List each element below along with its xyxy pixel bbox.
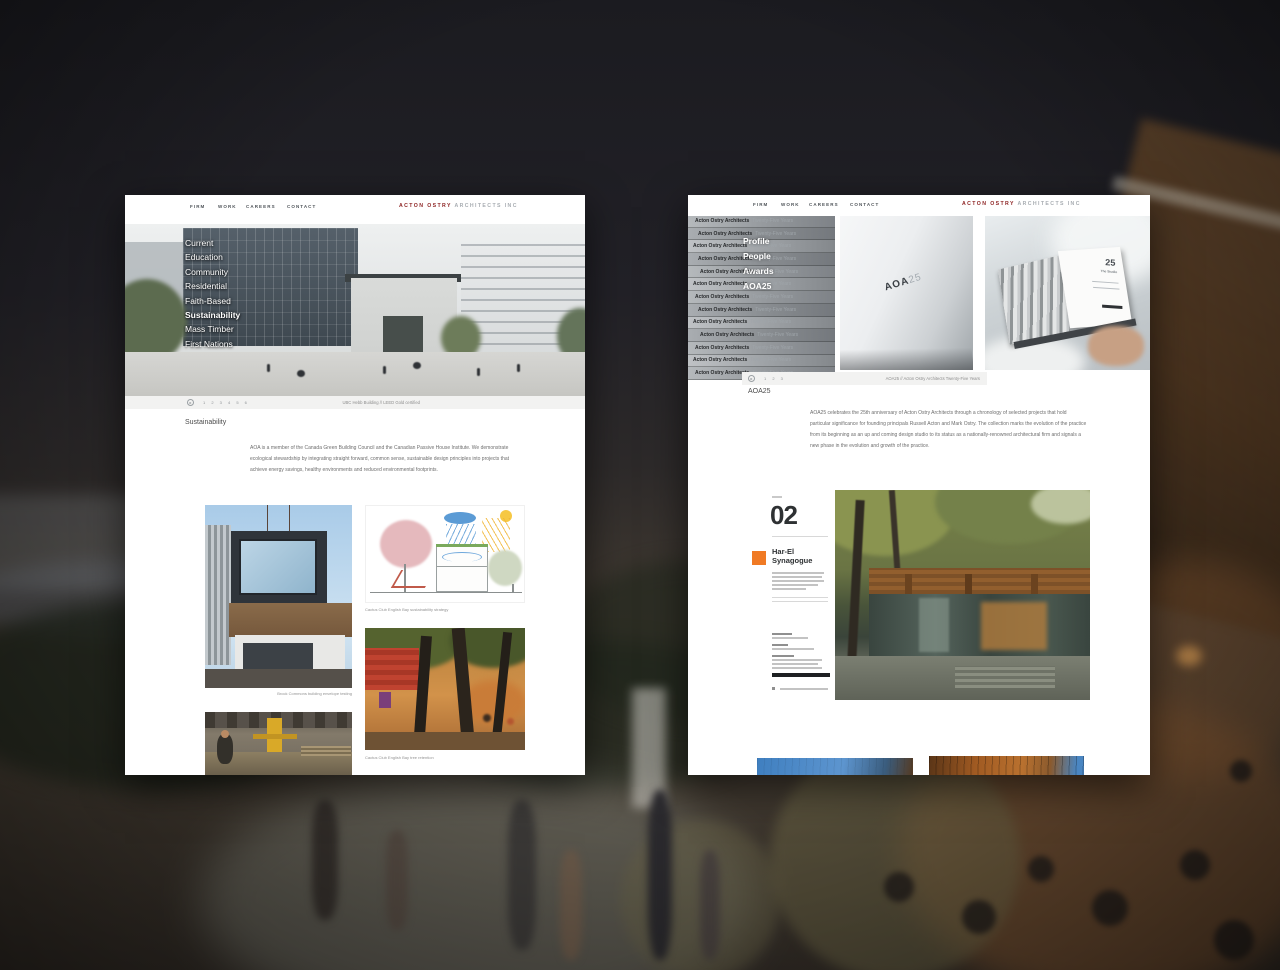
category-menu: Current Education Community Residential … bbox=[185, 236, 240, 351]
project-detail-line bbox=[772, 655, 794, 657]
project-detail-line bbox=[772, 644, 788, 646]
section-body: AOA is a member of the Canada Green Buil… bbox=[250, 443, 522, 476]
construction-mid bbox=[229, 603, 352, 637]
play-icon[interactable]: ▸ bbox=[748, 375, 755, 382]
menu-item-awards[interactable]: Awards bbox=[743, 264, 774, 279]
photo-thumb-sky-roof bbox=[757, 758, 913, 775]
panel-stack bbox=[301, 746, 351, 756]
photo-aoa25-book-cover: AOA25 bbox=[840, 215, 973, 370]
diagram-caption: Cactus Club English Bay sustainability s… bbox=[365, 607, 448, 612]
footer-line bbox=[780, 688, 828, 690]
project-blurb-line bbox=[772, 572, 824, 574]
website-screenshot-aoa25: FIRM WORK CAREERS CONTACT ACTON OSTRY AR… bbox=[688, 195, 1150, 775]
project-name: Har-ElSynagogue bbox=[772, 548, 812, 565]
cover-title: AOA25 bbox=[883, 272, 923, 294]
book-spine-title: Acton Ostry Architects bbox=[695, 345, 749, 351]
roof-slats bbox=[757, 758, 913, 775]
signage bbox=[379, 692, 391, 708]
hero-pedestrian bbox=[383, 366, 386, 374]
book-spine-subtitle: Twenty-Five Years bbox=[755, 307, 796, 313]
hero-pedestrian bbox=[517, 364, 520, 372]
page-number: 25 bbox=[1105, 257, 1115, 268]
book-spine-subtitle: Twenty-Five Years bbox=[750, 357, 791, 363]
menu-item-current[interactable]: Current bbox=[185, 236, 240, 250]
hero-plaza bbox=[125, 352, 585, 396]
project-detail-line bbox=[772, 663, 818, 665]
book-spine: Acton Ostry Architects Twenty-Five Years bbox=[688, 329, 835, 342]
nav-link-work[interactable]: WORK bbox=[218, 204, 237, 209]
page-heading: The Studio bbox=[1100, 269, 1117, 274]
patio-person bbox=[483, 714, 491, 722]
project-name-line2: Synagogue bbox=[772, 556, 812, 565]
book-spine-title: Acton Ostry Architects bbox=[695, 218, 749, 224]
diagram-airflow bbox=[442, 552, 482, 562]
crane-cable bbox=[289, 505, 290, 533]
book-spine-title: Acton Ostry Architects bbox=[700, 332, 754, 338]
nav-link-work[interactable]: WORK bbox=[781, 202, 800, 207]
book-spine-subtitle: Twenty-Five Years bbox=[750, 319, 791, 325]
section-title: AOA25 bbox=[748, 388, 771, 395]
menu-item-community[interactable]: Community bbox=[185, 265, 240, 279]
hero-cyclist bbox=[413, 362, 421, 369]
rule bbox=[772, 597, 828, 598]
page-rule bbox=[1093, 287, 1119, 290]
book-page-text: 25 The Studio bbox=[1058, 247, 1132, 328]
worker-skin bbox=[221, 730, 229, 738]
site-nav: FIRM WORK CAREERS CONTACT ACTON OSTRY AR… bbox=[688, 195, 1150, 216]
menu-item-sustainability[interactable]: Sustainability bbox=[185, 308, 240, 322]
book-spine-subtitle: Twenty-Five Years bbox=[752, 218, 793, 224]
storefront bbox=[243, 643, 313, 669]
patio-person bbox=[507, 718, 514, 725]
menu-item-education[interactable]: Education bbox=[185, 250, 240, 264]
brand-primary: ACTON OSTRY bbox=[399, 203, 452, 209]
diagram-sustainability-strategy bbox=[365, 505, 525, 603]
machine-arm bbox=[253, 734, 297, 739]
carousel-bar: ▸ 1 2 3 4 5 6 UBC Hebb Building // LEED … bbox=[125, 396, 585, 409]
reader-hand bbox=[1088, 326, 1144, 366]
menu-item-mass-timber[interactable]: Mass Timber bbox=[185, 322, 240, 336]
photo-aoa25-book-open: 25 The Studio bbox=[985, 215, 1150, 370]
project-blurb-line bbox=[772, 584, 818, 586]
glass-band bbox=[869, 594, 1090, 656]
project-detail-line bbox=[772, 667, 822, 669]
crane-cable bbox=[267, 505, 268, 533]
interior-glow bbox=[981, 602, 1047, 650]
hero-photo-ubc-hebb: Current Education Community Residential … bbox=[125, 224, 585, 396]
project-number: 02 bbox=[770, 500, 797, 531]
worker bbox=[217, 734, 233, 764]
photo-caption: Brock Commons building envelope testing bbox=[277, 691, 352, 696]
book-spine-title: Acton Ostry Architects bbox=[695, 294, 749, 300]
brand-primary: ACTON OSTRY bbox=[962, 201, 1015, 207]
rule bbox=[772, 536, 828, 537]
brand-logo[interactable]: ACTON OSTRY ARCHITECTS INC bbox=[962, 201, 1081, 207]
carousel-caption: UBC Hebb Building // LEED Gold certified bbox=[342, 400, 420, 405]
book-spine-subtitle: Twenty-Five Years bbox=[752, 345, 793, 351]
ceiling-slats bbox=[929, 756, 1084, 775]
book-spine: Acton Ostry Architects Twenty-Five Years bbox=[688, 355, 835, 368]
photo-thumb-wood-ceiling bbox=[929, 756, 1084, 775]
spread-kicker bbox=[772, 496, 782, 498]
photo-caption: Cactus Club English Bay tree retention bbox=[365, 755, 434, 760]
site-nav: FIRM WORK CAREERS CONTACT ACTON OSTRY AR… bbox=[125, 195, 585, 224]
book-spine: Acton Ostry Architects Twenty-Five Years bbox=[688, 215, 835, 228]
project-color-chip bbox=[752, 551, 766, 565]
firm-menu: Profile People Awards AOA25 bbox=[743, 234, 774, 294]
project-detail-line bbox=[772, 637, 808, 639]
book-spine-title: Acton Ostry Architects bbox=[693, 243, 747, 249]
hero-cyclist bbox=[297, 370, 305, 377]
nav-link-careers[interactable]: CAREERS bbox=[809, 202, 839, 207]
design-mockup-canvas: FIRM WORK CAREERS CONTACT ACTON OSTRY AR… bbox=[0, 0, 1280, 970]
diagram-ground-line bbox=[370, 592, 522, 593]
hero-pedestrian bbox=[477, 368, 480, 376]
section-body: AOA25 celebrates the 25th anniversary of… bbox=[810, 408, 1088, 452]
carousel-bar: ▸ 1 2 3 AOA25 // Acton Ostry Architects … bbox=[742, 372, 987, 385]
website-screenshot-sustainability: FIRM WORK CAREERS CONTACT ACTON OSTRY AR… bbox=[125, 195, 585, 775]
diagram-green-roof bbox=[436, 544, 488, 547]
carousel-page-numbers[interactable]: 1 2 3 bbox=[764, 376, 785, 381]
cover-shadow bbox=[840, 323, 973, 370]
nav-link-contact[interactable]: CONTACT bbox=[287, 204, 316, 209]
cover-title-word: AOA bbox=[883, 275, 910, 293]
diagram-tree-right bbox=[488, 550, 522, 586]
wood-roof-band bbox=[869, 568, 1090, 594]
brand-secondary: ARCHITECTS INC bbox=[1017, 201, 1080, 207]
play-icon[interactable]: ▸ bbox=[187, 399, 194, 406]
book-spine: Acton Ostry Architects Twenty-Five Years bbox=[688, 304, 835, 317]
photo-har-el-synagogue bbox=[835, 490, 1090, 700]
project-blurb-line bbox=[772, 576, 822, 578]
project-detail-line bbox=[772, 648, 814, 650]
book-spine-subtitle: Twenty-Five Years bbox=[757, 332, 798, 338]
menu-item-aoa25[interactable]: AOA25 bbox=[743, 279, 774, 294]
book-spine-title: Acton Ostry Architects bbox=[693, 357, 747, 363]
project-detail-line bbox=[772, 633, 792, 635]
book-spine-title: Acton Ostry Architects bbox=[698, 307, 752, 313]
diagram-figure bbox=[512, 584, 514, 592]
patio-ground bbox=[365, 732, 525, 750]
carousel-page-numbers[interactable]: 1 2 3 4 5 6 bbox=[203, 400, 249, 405]
book-spine: Acton Ostry Architects Twenty-Five Years bbox=[688, 317, 835, 330]
book-spine-subtitle: Twenty-Five Years bbox=[752, 294, 793, 300]
ground bbox=[205, 669, 352, 688]
diagram-section-floor bbox=[436, 566, 488, 567]
divider-bar bbox=[772, 673, 830, 677]
awning bbox=[365, 648, 419, 690]
menu-item-residential[interactable]: Residential bbox=[185, 279, 240, 293]
project-blurb-line bbox=[772, 580, 824, 582]
photo-tree-retention bbox=[365, 628, 525, 750]
photo-brock-commons-module bbox=[205, 505, 352, 688]
book-spine-title: Acton Ostry Architects bbox=[693, 281, 747, 287]
brand-secondary: ARCHITECTS INC bbox=[454, 203, 517, 209]
scaffold bbox=[205, 525, 231, 665]
menu-item-first-nations[interactable]: First Nations bbox=[185, 337, 240, 351]
nav-link-careers[interactable]: CAREERS bbox=[246, 204, 276, 209]
menu-item-profile[interactable]: Profile bbox=[743, 234, 774, 249]
diagram-cloud bbox=[444, 512, 476, 524]
section-title: Sustainability bbox=[185, 419, 226, 426]
book-page-photo bbox=[998, 256, 1070, 345]
steps bbox=[955, 666, 1055, 688]
menu-item-people[interactable]: People bbox=[743, 249, 774, 264]
module-window bbox=[239, 539, 317, 595]
nav-link-contact[interactable]: CONTACT bbox=[850, 202, 879, 207]
diagram-red-arrow bbox=[391, 570, 435, 588]
page-rule bbox=[1092, 281, 1118, 284]
diagram-tree-pink bbox=[380, 520, 432, 568]
photo-fabrication-shop bbox=[205, 712, 352, 775]
footer-mark bbox=[772, 687, 775, 690]
nav-link-firm[interactable]: FIRM bbox=[190, 204, 205, 209]
carousel-caption: AOA25 // Acton Ostry Architects Twenty-F… bbox=[886, 376, 980, 381]
menu-item-faith-based[interactable]: Faith-Based bbox=[185, 294, 240, 308]
brand-logo[interactable]: ACTON OSTRY ARCHITECTS INC bbox=[399, 203, 518, 209]
book-spine: Acton Ostry Architects Twenty-Five Years bbox=[688, 342, 835, 355]
glass-reflection bbox=[919, 598, 949, 652]
hero-pedestrian bbox=[267, 364, 270, 372]
page-rule bbox=[1102, 305, 1122, 309]
rule bbox=[772, 601, 828, 602]
nav-link-firm[interactable]: FIRM bbox=[753, 202, 768, 207]
project-detail-line bbox=[772, 659, 822, 661]
book-spine-title: Acton Ostry Architects bbox=[693, 319, 747, 325]
cover-title-number: 25 bbox=[907, 272, 923, 286]
project-blurb-line bbox=[772, 588, 806, 590]
